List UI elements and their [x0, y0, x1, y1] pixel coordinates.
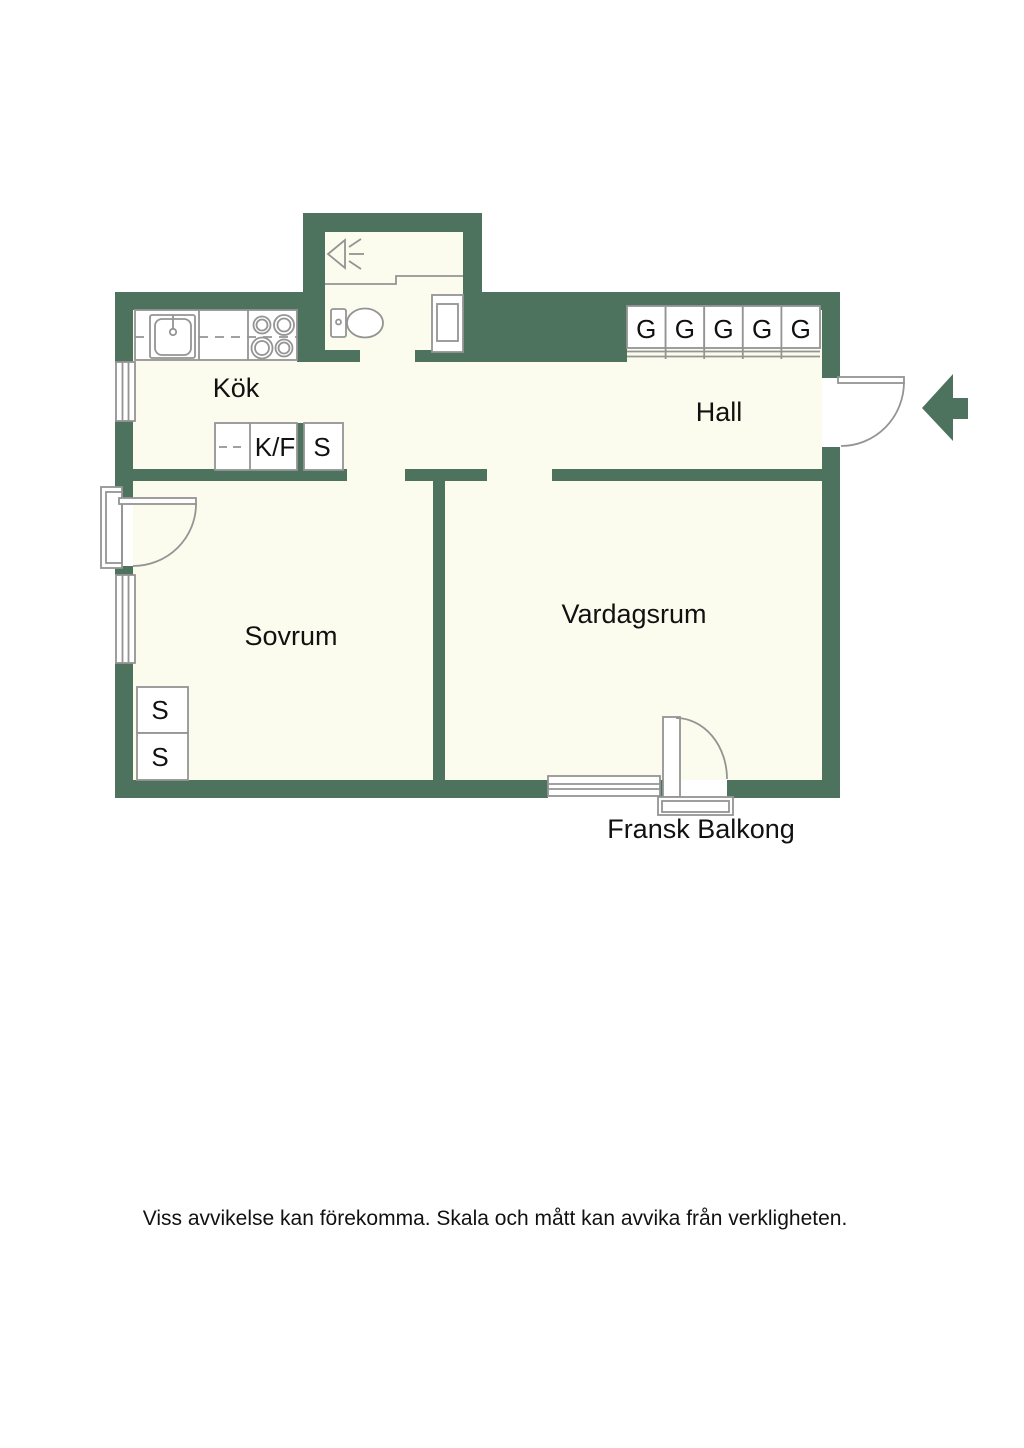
- room-label-kok: Kök: [213, 373, 260, 403]
- wall-segment: [325, 350, 360, 362]
- floorplan-page: Kök Hall Sovrum Vardagsrum Fransk Balkon…: [0, 0, 1024, 1448]
- label-wardrobe-g: G: [636, 314, 656, 344]
- wall-segment: [433, 481, 445, 780]
- wall-segment: [405, 469, 487, 481]
- label-wardrobe-g: G: [713, 314, 733, 344]
- window-bedroom: [116, 575, 135, 663]
- wall-segment: [115, 292, 303, 310]
- label-bedroom-closet-s: S: [151, 742, 168, 772]
- toilet-icon: [347, 309, 383, 338]
- wall-segment: [115, 663, 133, 798]
- wall-segment: [822, 292, 840, 378]
- wall-segment: [115, 292, 133, 363]
- room-label-fransk-balkong: Fransk Balkong: [607, 814, 795, 844]
- wall-segment: [822, 447, 840, 798]
- label-hall-cabinet: S: [313, 432, 330, 462]
- entrance-arrow-icon: [922, 374, 968, 441]
- room-label-vardagsrum: Vardagsrum: [561, 599, 706, 629]
- wall-segment: [727, 780, 840, 798]
- wall-segment: [303, 213, 482, 232]
- wall-segment: [297, 423, 304, 469]
- window-kitchen: [116, 362, 135, 421]
- wall-segment: [552, 469, 822, 481]
- label-wardrobe-g: G: [791, 314, 811, 344]
- entrance-door: [838, 377, 904, 446]
- label-fridge-freezer: K/F: [255, 432, 295, 462]
- door-leaf: [838, 377, 904, 383]
- label-bedroom-closet-s: S: [151, 695, 168, 725]
- disclaimer-text: Viss avvikelse kan förekomma. Skala och …: [143, 1207, 848, 1230]
- wall-segment: [115, 780, 548, 798]
- room-label-sovrum: Sovrum: [244, 621, 337, 651]
- toilet-tank: [331, 309, 346, 337]
- room-label-hall: Hall: [696, 397, 743, 427]
- label-wardrobe-g: G: [752, 314, 772, 344]
- label-wardrobe-g: G: [675, 314, 695, 344]
- door-leaf: [663, 717, 680, 797]
- window-livingroom: [548, 776, 660, 796]
- door-leaf: [119, 498, 196, 504]
- door-swing-arc: [841, 382, 904, 446]
- floorplan-drawing: Kök Hall Sovrum Vardagsrum Fransk Balkon…: [0, 0, 1024, 1448]
